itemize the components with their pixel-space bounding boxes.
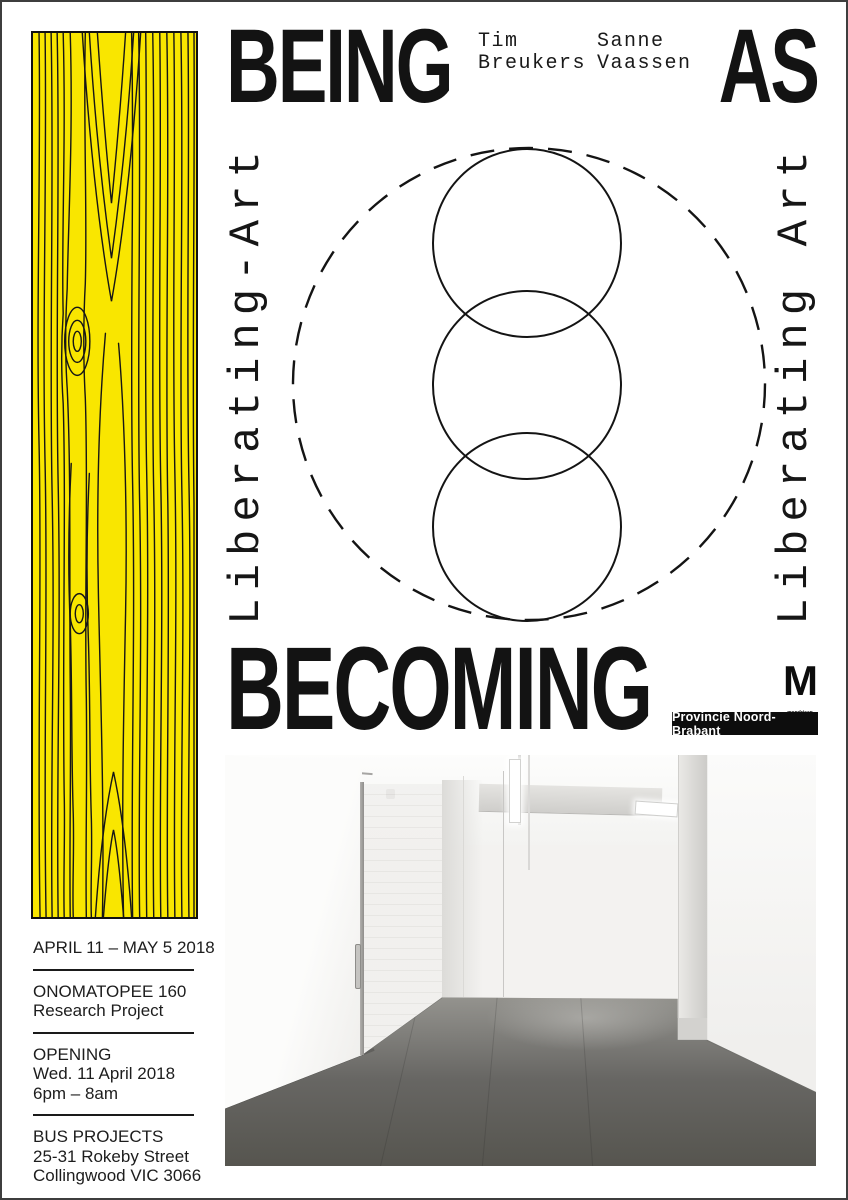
divider-rule bbox=[33, 1032, 194, 1034]
wood-grain-icon bbox=[33, 33, 196, 917]
venue-name: BUS PROJECTS bbox=[33, 1127, 194, 1147]
title-becoming: BECOMING bbox=[226, 630, 651, 748]
photo-wall-seam bbox=[503, 771, 504, 997]
divider-rule bbox=[33, 1114, 194, 1116]
gallery-photo bbox=[225, 755, 816, 1166]
opening-date: Wed. 11 April 2018 bbox=[33, 1064, 194, 1084]
provincie-logo-label: Provincie Noord-Brabant bbox=[672, 710, 818, 738]
provincie-noord-brabant-logo: Provincie Noord-Brabant bbox=[672, 712, 818, 735]
photo-door-rail bbox=[360, 782, 364, 1055]
venue-address-line2: Collingwood VIC 3066 bbox=[33, 1166, 194, 1186]
photo-wall-seam bbox=[463, 776, 464, 998]
artist-first-name: Sanne bbox=[597, 31, 692, 53]
mondriaan-m-icon: M bbox=[780, 660, 820, 702]
venue-address-line1: 25-31 Rokeby Street bbox=[33, 1147, 194, 1167]
opening-time: 6pm – 8am bbox=[33, 1084, 194, 1104]
vertical-text-left: Liberating-Art bbox=[222, 143, 272, 625]
photo-fluorescent-light bbox=[509, 759, 522, 823]
title-being: BEING bbox=[226, 14, 451, 119]
overlapping-circles-diagram bbox=[289, 144, 769, 624]
title-as: AS bbox=[719, 14, 818, 119]
artist-sanne-vaassen: SanneVaassen bbox=[597, 31, 692, 75]
artist-last-name: Vaassen bbox=[597, 53, 692, 75]
exhibition-dates: APRIL 11 – MAY 5 2018 bbox=[33, 938, 194, 958]
opening-heading: OPENING bbox=[33, 1045, 194, 1065]
photo-door-handle bbox=[355, 944, 361, 989]
project-type: Research Project bbox=[33, 1001, 194, 1021]
vertical-text-right: Liberating Art bbox=[770, 143, 820, 625]
project-number: ONOMATOPEE 160 bbox=[33, 982, 194, 1002]
wood-grain-panel bbox=[31, 31, 198, 919]
photo-concrete-column bbox=[678, 755, 709, 1041]
exhibition-info-column: APRIL 11 – MAY 5 2018 ONOMATOPEE 160 Res… bbox=[33, 938, 194, 1186]
divider-rule bbox=[33, 969, 194, 971]
artist-tim-breukers: TimBreukers bbox=[478, 31, 586, 75]
artist-first-name: Tim bbox=[478, 31, 586, 53]
artist-last-name: Breukers bbox=[478, 53, 586, 75]
photo-pipe bbox=[528, 755, 530, 870]
photo-floor-light-patch bbox=[485, 985, 686, 1051]
photo-column-base bbox=[676, 1018, 710, 1041]
